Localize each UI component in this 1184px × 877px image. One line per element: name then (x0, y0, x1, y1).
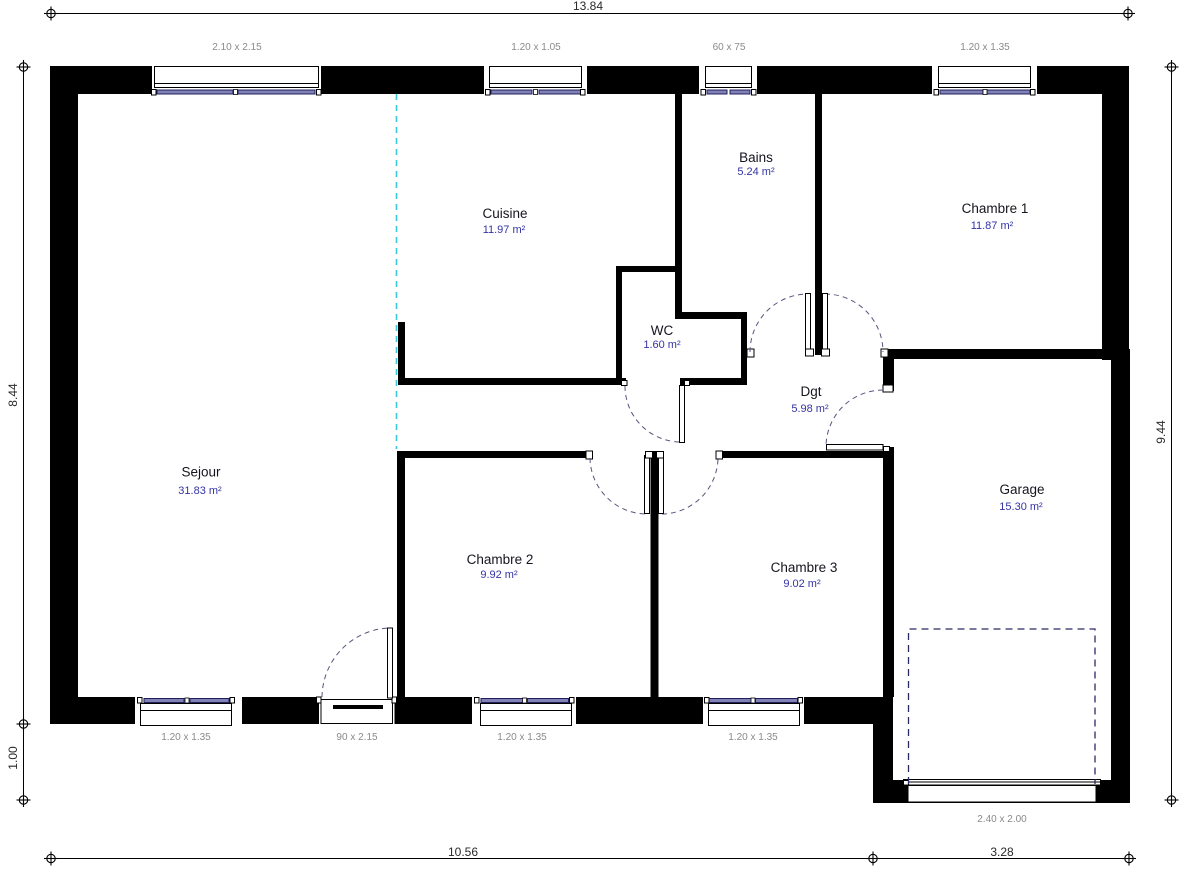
svg-text:5.98 m²: 5.98 m² (791, 403, 829, 415)
svg-text:5.24 m²: 5.24 m² (737, 166, 775, 178)
svg-text:2.40 x 2.00: 2.40 x 2.00 (977, 814, 1027, 825)
svg-text:1.20 x 1.35: 1.20 x 1.35 (728, 732, 778, 743)
svg-text:1.20 x 1.05: 1.20 x 1.05 (511, 42, 561, 53)
svg-text:Chambre 1: Chambre 1 (962, 201, 1029, 216)
svg-text:9.02 m²: 9.02 m² (783, 578, 821, 590)
svg-text:1.20 x 1.35: 1.20 x 1.35 (960, 42, 1010, 53)
svg-text:9.92 m²: 9.92 m² (480, 569, 518, 581)
svg-text:8.44: 8.44 (6, 383, 20, 407)
svg-text:1.20 x 1.35: 1.20 x 1.35 (161, 732, 211, 743)
svg-text:Garage: Garage (999, 482, 1044, 497)
svg-text:1.00: 1.00 (6, 746, 20, 770)
svg-text:60 x 75: 60 x 75 (713, 42, 746, 53)
svg-text:15.30 m²: 15.30 m² (999, 501, 1043, 513)
svg-text:11.97 m²: 11.97 m² (483, 224, 526, 236)
svg-text:13.84: 13.84 (573, 0, 603, 13)
svg-text:90 x 2.15: 90 x 2.15 (336, 732, 378, 743)
svg-text:3.28: 3.28 (990, 845, 1014, 859)
svg-text:2.10 x 2.15: 2.10 x 2.15 (212, 42, 262, 53)
svg-text:Sejour: Sejour (181, 465, 221, 480)
svg-text:11.87 m²: 11.87 m² (971, 220, 1014, 232)
svg-text:Chambre 2: Chambre 2 (467, 552, 534, 567)
svg-text:1.20 x 1.35: 1.20 x 1.35 (497, 732, 547, 743)
svg-text:9.44: 9.44 (1154, 420, 1168, 444)
svg-text:Bains: Bains (739, 150, 773, 165)
svg-text:31.83 m²: 31.83 m² (178, 485, 222, 497)
svg-text:WC: WC (651, 323, 674, 338)
svg-text:1.60 m²: 1.60 m² (643, 339, 681, 351)
svg-text:10.56: 10.56 (448, 845, 478, 859)
svg-text:Cuisine: Cuisine (482, 206, 527, 221)
svg-text:Chambre 3: Chambre 3 (771, 560, 838, 575)
svg-text:Dgt: Dgt (800, 384, 821, 399)
